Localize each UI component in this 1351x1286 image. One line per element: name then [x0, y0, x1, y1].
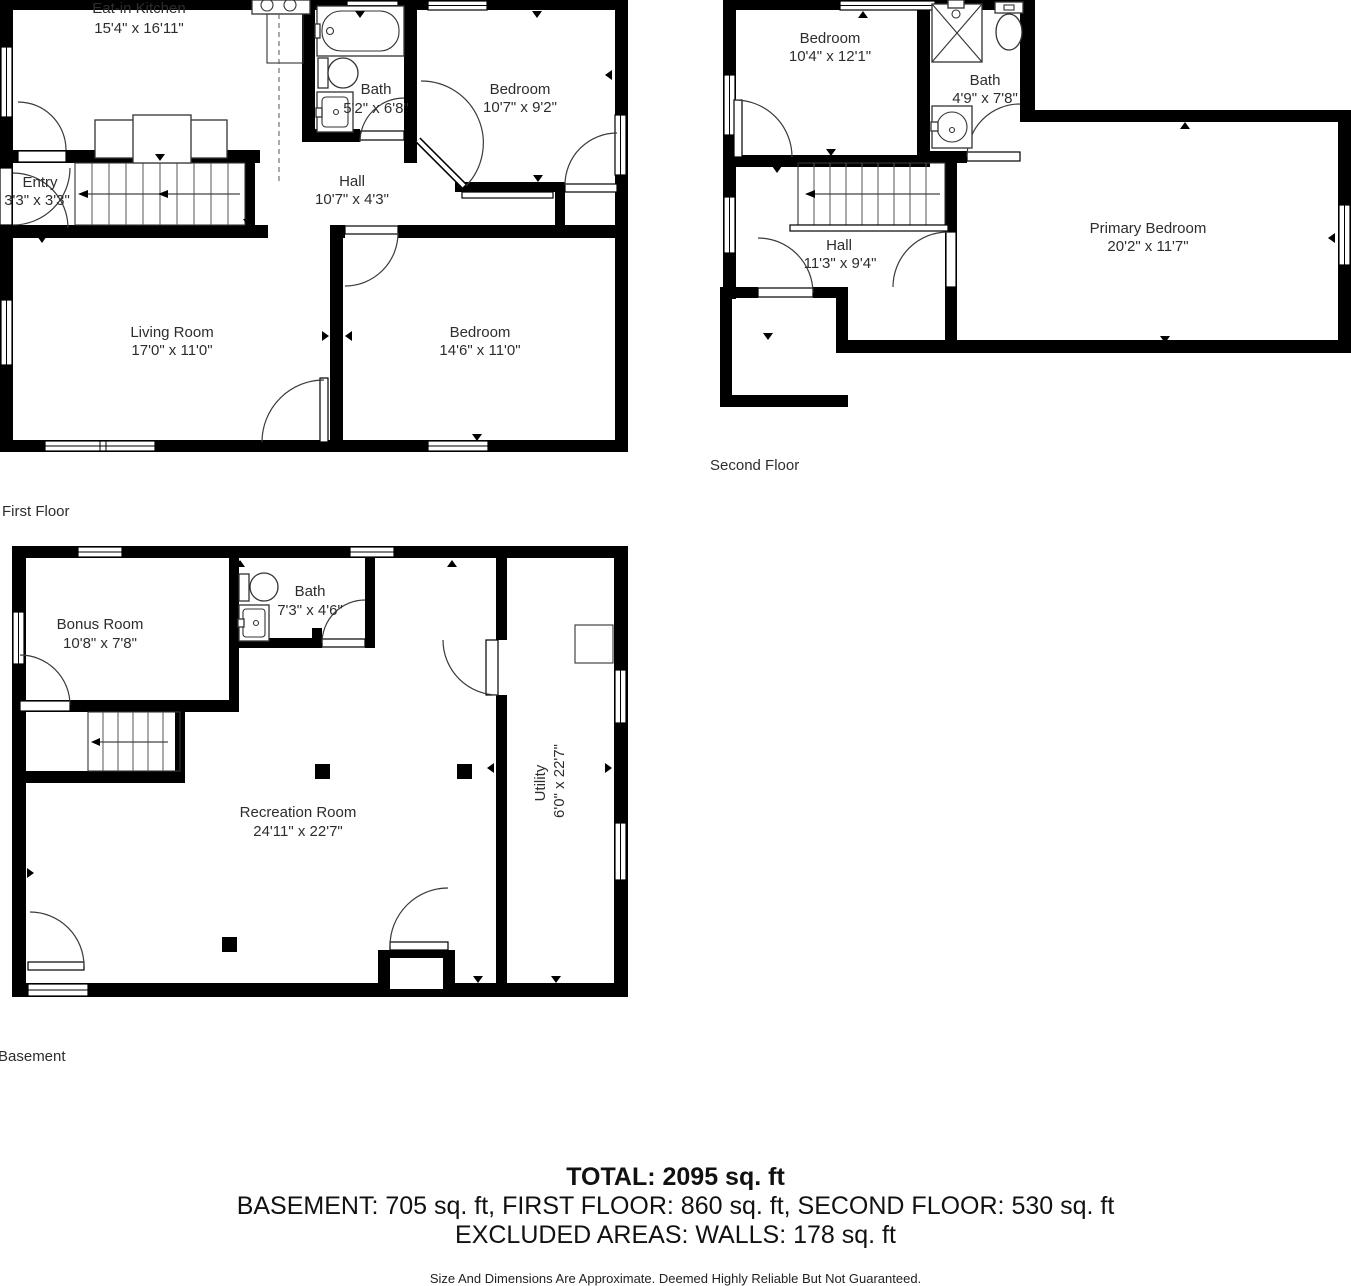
room-dims-hall1: 10'7" x 4'3"	[315, 191, 389, 208]
floor-label-second: Second Floor	[710, 457, 799, 474]
floor-label-basement: Basement	[0, 1048, 66, 1065]
room-label-entry: Entry	[22, 174, 58, 191]
floor-label-first: First Floor	[2, 503, 70, 520]
room-label-utility: Utility 6'0" x 22'7"	[532, 744, 568, 818]
floor-areas-text: BASEMENT: 705 sq. ft, FIRST FLOOR: 860 s…	[0, 1192, 1351, 1221]
room-dims-kitchen: 15'4" x 16'11"	[94, 20, 184, 37]
room-label-bath1: Bath	[361, 81, 392, 98]
basement-stairs	[88, 712, 180, 771]
room-dims-primary: 20'2" x 11'7"	[1107, 238, 1188, 255]
floor-plan-drawing: Eat-in Kitchen 15'4" x 16'11" Bath 5'2" …	[0, 0, 1351, 1286]
room-label-bedroom-upper: Bedroom	[490, 81, 551, 98]
stove-icon	[252, 0, 310, 185]
room-label-living: Living Room	[130, 324, 213, 341]
room-dims-living: 17'0" x 11'0"	[131, 342, 212, 359]
room-label-bedroom2: Bedroom	[800, 30, 861, 47]
water-heater-icon	[575, 625, 613, 663]
room-dims-recreation: 24'11" x 22'7"	[253, 823, 343, 840]
basement-doors	[20, 600, 498, 970]
toilet-icon-second	[995, 2, 1023, 50]
room-dims-entry: 3'3" x 3'3"	[4, 192, 70, 209]
excluded-areas-text: EXCLUDED AREAS: WALLS: 178 sq. ft	[0, 1221, 1351, 1250]
area-summary: TOTAL: 2095 sq. ft BASEMENT: 705 sq. ft,…	[0, 1163, 1351, 1250]
first-floor-stairs	[75, 163, 245, 225]
room-label-kitchen: Eat-in Kitchen	[92, 0, 185, 17]
total-area-text: TOTAL: 2095 sq. ft	[0, 1163, 1351, 1192]
toilet-icon	[318, 58, 358, 88]
room-label-hall2: Hall	[826, 237, 852, 254]
room-dims-bath3: 7'3" x 4'6"	[277, 602, 343, 619]
room-label-primary: Primary Bedroom	[1090, 220, 1207, 237]
room-label-hall1: Hall	[339, 173, 365, 190]
room-dims-bath1: 5'2" x 6'8"	[343, 100, 409, 117]
second-floor-plan: Bedroom 10'4" x 12'1" Bath 4'9" x 7'8" H…	[710, 0, 1351, 474]
room-dims-bedroom-upper: 10'7" x 9'2"	[483, 99, 557, 116]
first-floor-walls	[0, 0, 628, 452]
room-label-bedroom-lower: Bedroom	[450, 324, 511, 341]
floor-plan-page: Eat-in Kitchen 15'4" x 16'11" Bath 5'2" …	[0, 0, 1351, 1286]
room-dims-bonus: 10'8" x 7'8"	[63, 635, 137, 652]
sink-icon-basement	[238, 605, 269, 641]
second-floor-doors	[734, 100, 1020, 297]
room-label-bonus: Bonus Room	[57, 616, 144, 633]
basement-plan: Bonus Room 10'8" x 7'8" Bath 7'3" x 4'6"…	[0, 546, 628, 1065]
support-columns	[222, 764, 472, 952]
second-floor-stairs	[790, 163, 948, 231]
room-label-recreation: Recreation Room	[240, 804, 357, 821]
room-label-bath2: Bath	[970, 72, 1001, 89]
first-floor-plan: Eat-in Kitchen 15'4" x 16'11" Bath 5'2" …	[0, 0, 628, 520]
sink-icon-second	[931, 106, 972, 148]
toilet-icon-basement	[239, 573, 278, 601]
disclaimer-text: Size And Dimensions Are Approximate. Dee…	[0, 1271, 1351, 1286]
room-dims-bath2: 4'9" x 7'8"	[952, 90, 1018, 107]
room-label-bath3: Bath	[295, 583, 326, 600]
room-dims-bedroom2: 10'4" x 12'1"	[789, 48, 871, 65]
room-dims-hall2: 11'3" x 9'4"	[804, 255, 877, 272]
shower-icon	[932, 0, 982, 62]
room-dims-bedroom-lower: 14'6" x 11'0"	[439, 342, 520, 359]
